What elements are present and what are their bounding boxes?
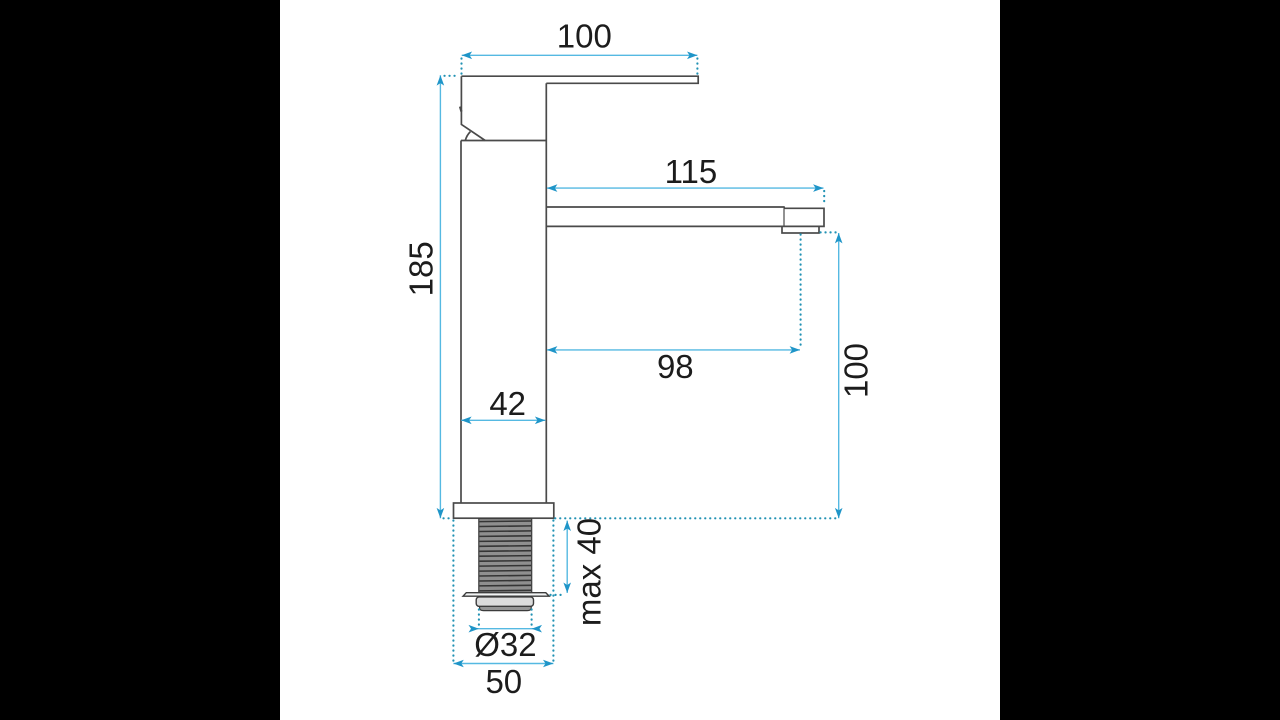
svg-text:115: 115	[665, 153, 718, 190]
svg-text:Ø32: Ø32	[474, 626, 536, 663]
svg-text:98: 98	[657, 348, 694, 385]
svg-text:100: 100	[557, 17, 612, 54]
svg-text:42: 42	[489, 385, 526, 422]
svg-text:max 40: max 40	[571, 518, 608, 626]
svg-text:50: 50	[485, 663, 522, 700]
svg-text:185: 185	[403, 241, 440, 296]
svg-text:100: 100	[838, 343, 875, 398]
